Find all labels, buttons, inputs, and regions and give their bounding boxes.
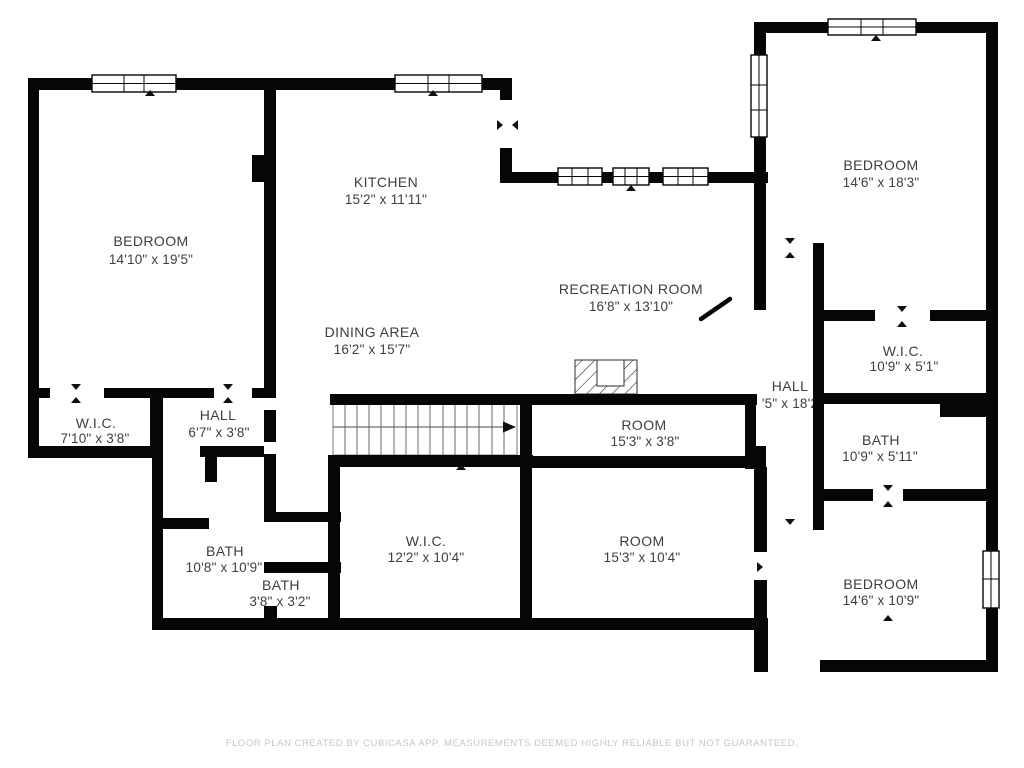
room-label-bath-left: BATH: [206, 543, 244, 559]
room-dims-wic-right: 10'9" x 5'1": [870, 359, 939, 374]
room-dims-room-upper: 15'3" x 3'8": [611, 434, 680, 449]
floor-plan-drawing: HALL '5" x 18'2: [0, 0, 1024, 768]
walls: [28, 22, 998, 672]
room-dims-bath-right: 10'9" x 5'11": [842, 449, 918, 464]
room-label-kitchen: KITCHEN: [354, 174, 418, 190]
hall-center-dims: '5" x 18'2: [762, 396, 818, 411]
footer-disclaimer: FLOOR PLAN CREATED BY CUBICASA APP. MEAS…: [226, 738, 799, 749]
room-label-wic-left: W.I.C.: [76, 415, 117, 431]
floor-plan-page: HALL '5" x 18'2: [0, 0, 1024, 768]
room-dims-room-lower: 15'3" x 10'4": [604, 550, 681, 565]
window-icon: [613, 168, 649, 185]
room-dims-hall-left: 6'7" x 3'8": [188, 425, 249, 440]
room-dims-dining-area: 16'2" x 15'7": [334, 342, 411, 357]
room-label-bedroom-lower-right: BEDROOM: [843, 576, 918, 592]
window-icon: [395, 75, 482, 92]
room-dims-bedroom-upper-right: 14'6" x 18'3": [843, 175, 920, 190]
room-dims-bedroom-lower-right: 14'6" x 10'9": [843, 593, 920, 608]
stairs-direction-arrow: [503, 422, 516, 433]
fireplace-icon: [575, 360, 637, 394]
room-label-bedroom-upper-right: BEDROOM: [843, 157, 918, 173]
room-label-bath-right: BATH: [862, 432, 900, 448]
window-icon: [983, 551, 999, 608]
room-label-wic-right: W.I.C.: [883, 343, 924, 359]
door-leaf: [701, 299, 730, 319]
room-label-dining-area: DINING AREA: [325, 324, 420, 340]
room-label-wic-center: W.I.C.: [406, 533, 447, 549]
room-label-room-upper: ROOM: [621, 417, 666, 433]
room-dims-kitchen: 15'2" x 11'11": [345, 192, 427, 207]
room-dims-bath-left: 10'8" x 10'9": [186, 560, 263, 575]
room-label-bedroom-upper-left: BEDROOM: [113, 233, 188, 249]
window-icon: [751, 55, 767, 137]
window-icon: [92, 75, 176, 92]
hall-center-name: HALL: [772, 378, 809, 394]
window-icon: [828, 19, 916, 35]
room-label-hall-center: HALL '5" x 18'2: [762, 378, 818, 411]
room-label-room-lower: ROOM: [619, 533, 664, 549]
room-label-recreation-room: RECREATION ROOM: [559, 281, 703, 297]
room-label-hall-left: HALL: [200, 407, 237, 423]
room-dims-wic-left: 7'10" x 3'8": [61, 431, 130, 446]
room-dims-wic-center: 12'2" x 10'4": [388, 550, 465, 565]
room-dims-bedroom-upper-left: 14'10" x 19'5": [109, 252, 193, 267]
room-dims-recreation-room: 16'8" x 13'10": [589, 299, 673, 314]
stairs-icon: [333, 400, 517, 455]
window-icon: [663, 168, 708, 185]
room-label-bath-small: BATH: [262, 577, 300, 593]
room-dims-bath-small: 3'8" x 3'2": [249, 594, 310, 609]
door-markers: [71, 35, 907, 621]
window-icon: [558, 168, 602, 185]
